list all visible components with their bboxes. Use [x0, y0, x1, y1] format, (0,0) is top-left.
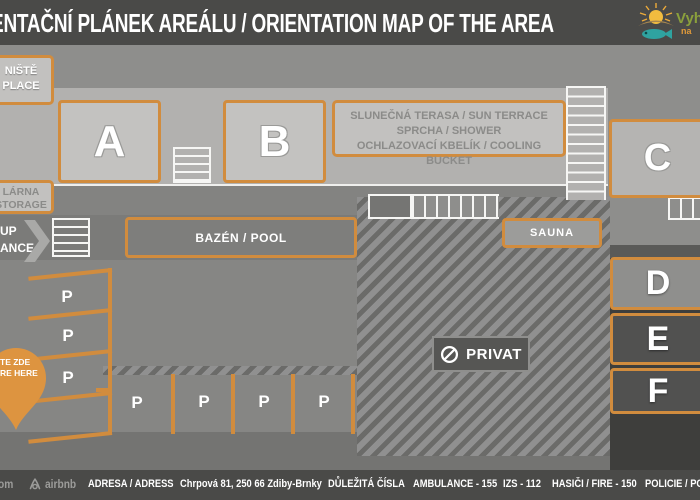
page-title: ENTAČNÍ PLÁNEK AREÁLU / ORIENTATION MAP …: [0, 8, 554, 39]
parking-p: P: [126, 393, 148, 413]
building-a: A: [58, 100, 161, 183]
building-c-letter: C: [644, 137, 671, 180]
emergency-police: POLICIE / POL: [645, 478, 700, 490]
building-f: F: [610, 368, 700, 414]
pool-label: BAZÉN / POOL: [195, 231, 286, 245]
parking-divider: [231, 374, 235, 434]
storage-label-line1: LÁRNA: [0, 186, 51, 199]
building-d: D: [610, 257, 700, 310]
fireplace-label-line1: NIŠTĚ: [0, 64, 51, 79]
parking-divider: [351, 374, 355, 434]
building-c: C: [609, 119, 700, 198]
pool-shed: [368, 194, 412, 219]
building-d-letter: D: [646, 264, 671, 303]
right-railing: [668, 197, 700, 220]
no-entry-icon: [440, 345, 459, 364]
parking-p: P: [56, 287, 78, 307]
address-label: ADRESA / ADRESS: [88, 478, 174, 490]
important-numbers-label: DŮLEŽITÁ ČÍSLA: [328, 478, 405, 490]
stairs-entrance: [52, 218, 90, 257]
emergency-fire: HASIČI / FIRE - 150: [552, 478, 637, 490]
resort-logo-name: Vyhl: [676, 10, 700, 27]
entrance-label-line1: UP: [0, 224, 17, 238]
terrace-label-line2: SPRCHA / SHOWER: [335, 124, 563, 139]
fireplace-box: NIŠTĚ PLACE: [0, 55, 54, 105]
building-f-letter: F: [648, 372, 669, 411]
building-a-letter: A: [94, 117, 126, 167]
header-bar: ENTAČNÍ PLÁNEK AREÁLU / ORIENTATION MAP …: [0, 0, 700, 45]
address-value: Chrpová 81, 250 66 Zdiby-Brnky: [180, 478, 322, 490]
building-b-letter: B: [259, 117, 291, 167]
resort-logo-icon: [633, 1, 679, 43]
orientation-map-screen: A B C D E F NIŠTĚ PLACE SLUNEČNÁ TERASA …: [0, 0, 700, 500]
sauna-box: SAUNA: [502, 218, 602, 248]
emergency-izs: IZS - 112: [503, 478, 541, 490]
parking-p: P: [313, 392, 335, 412]
terrace-label-line3: OCHLAZOVACÍ KBELÍK / COOLING BUCKET: [335, 139, 563, 169]
stairs-between-a-b: [173, 147, 211, 183]
airbnb-logo: airbnb: [28, 476, 82, 492]
terrace-box: SLUNEČNÁ TERASA / SUN TERRACE SPRCHA / S…: [332, 100, 566, 157]
parking-p: P: [193, 392, 215, 412]
building-e: E: [610, 313, 700, 365]
resort-logo-subname: na: [681, 26, 692, 36]
airbnb-icon: [28, 476, 42, 492]
fireplace-label-line2: PLACE: [0, 79, 51, 94]
bike-storage-box: LÁRNA STORAGE: [0, 180, 54, 214]
terrace-label-line1: SLUNEČNÁ TERASA / SUN TERRACE: [335, 109, 563, 124]
parking-stub: [96, 388, 112, 392]
parking-divider: [171, 374, 175, 434]
you-are-here-line1: TE ZDE: [0, 357, 30, 367]
entrance-arrow-icon: [24, 220, 50, 262]
airbnb-label: airbnb: [45, 477, 76, 491]
hatched-strip-above-parking: [103, 366, 357, 375]
pool-box: BAZÉN / POOL: [125, 217, 357, 258]
building-b: B: [223, 100, 326, 183]
parking-p: P: [253, 392, 275, 412]
storage-label-line2: STORAGE: [0, 199, 51, 212]
privat-label: PRIVAT: [466, 346, 522, 363]
sauna-label: SAUNA: [530, 227, 574, 239]
building-e-letter: E: [647, 320, 670, 359]
parking-divider: [291, 374, 295, 434]
pool-railing: [412, 194, 499, 219]
you-are-here-line2: RE HERE: [0, 368, 38, 378]
bottom-strip-mid: [357, 456, 610, 470]
stairs-column-right: [566, 86, 606, 200]
booking-logo-fragment: om: [0, 477, 13, 491]
parking-p: P: [57, 326, 79, 346]
privat-sign: PRIVAT: [432, 336, 530, 372]
parking-p: P: [57, 368, 79, 388]
footer-bar: om airbnb ADRESA / ADRESS Chrpová 81, 25…: [0, 470, 700, 500]
emergency-ambulance: AMBULANCE - 155: [413, 478, 497, 490]
